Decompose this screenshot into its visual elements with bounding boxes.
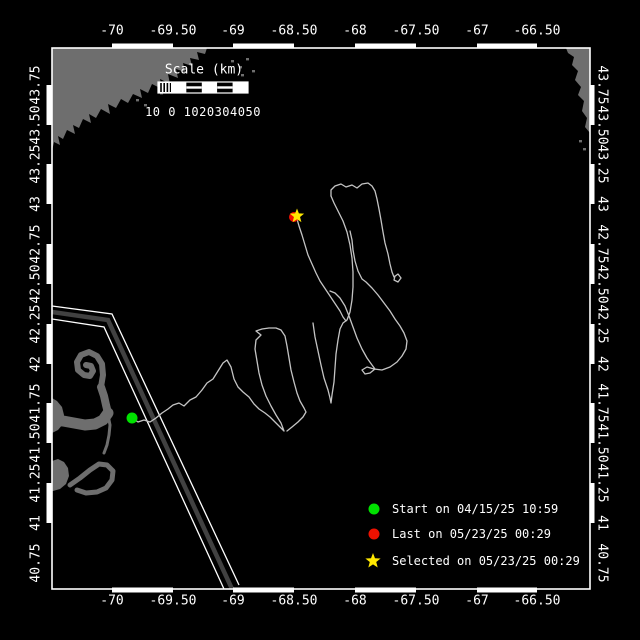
frame-bar-right	[590, 244, 595, 284]
scalebar-segment-solid	[233, 82, 248, 93]
map-svg	[0, 0, 640, 640]
scalebar-hatch-line	[163, 83, 165, 92]
island-speck	[241, 74, 244, 76]
track-map-figure: -70-69.50-69-68.50-68-67.50-67-66.50-70-…	[0, 0, 640, 640]
land-island-west-blob	[52, 459, 69, 491]
frame-bar-right	[590, 85, 595, 125]
frame-bar-bottom	[233, 588, 294, 593]
vehicle-track	[297, 219, 346, 321]
plot-area	[52, 48, 590, 589]
frame-bar-top	[112, 44, 173, 49]
vehicle-track	[331, 183, 401, 282]
frame-bar-left	[47, 324, 52, 364]
start-position-marker	[127, 413, 138, 424]
frame-bar-left	[47, 403, 52, 443]
island-speck	[239, 66, 242, 68]
legend-marker-selected	[365, 553, 380, 567]
land-maine-coast	[52, 48, 207, 151]
land-provincetown-hook	[77, 352, 103, 387]
frame-bar-left	[47, 244, 52, 284]
scalebar-hatch-line	[160, 83, 162, 92]
frame-bar-left	[47, 85, 52, 125]
land-island-arc	[70, 464, 113, 493]
frame-bar-bottom	[477, 588, 537, 593]
frame-bar-left	[47, 164, 52, 204]
vehicle-track	[330, 231, 407, 374]
island-speck	[231, 60, 234, 62]
scalebar-segment-solid	[171, 82, 186, 93]
vehicle-track	[132, 328, 306, 431]
legend-marker-last	[369, 529, 380, 540]
frame-bar-bottom	[355, 588, 416, 593]
island-speck	[246, 58, 249, 60]
frame-bar-left	[47, 483, 52, 523]
island-speck	[144, 104, 147, 106]
island-speck	[579, 140, 582, 142]
island-speck	[128, 93, 131, 95]
frame-bar-right	[590, 164, 595, 204]
scalebar-hatch-line	[167, 83, 169, 92]
island-speck	[252, 70, 255, 72]
frame-bar-bottom	[112, 588, 173, 593]
land-nova-scotia	[566, 48, 590, 133]
island-speck	[136, 99, 139, 101]
scalebar-segment-stripe	[217, 86, 232, 88]
frame-bar-top	[477, 44, 537, 49]
frame-bar-right	[590, 483, 595, 523]
plot-border	[52, 48, 590, 589]
scalebar-segment-stripe	[186, 86, 201, 88]
frame-bar-top	[233, 44, 294, 49]
frame-bar-top	[355, 44, 416, 49]
legend-marker-start	[369, 504, 380, 515]
frame-bar-right	[590, 403, 595, 443]
island-speck	[583, 148, 586, 150]
scalebar-segment-solid	[202, 82, 217, 93]
frame-bar-right	[590, 324, 595, 364]
